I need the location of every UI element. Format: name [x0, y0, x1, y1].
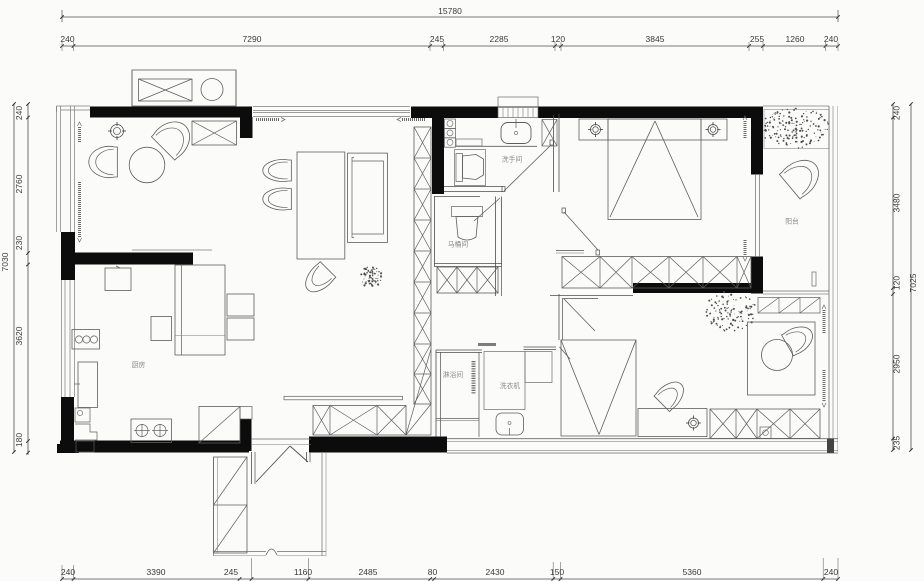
- svg-text:阳台: 阳台: [785, 217, 799, 226]
- svg-text:150: 150: [550, 567, 564, 577]
- svg-text:240: 240: [60, 34, 74, 44]
- svg-text:1260: 1260: [786, 34, 805, 44]
- svg-text:1160: 1160: [294, 567, 313, 577]
- svg-text:240: 240: [14, 106, 24, 120]
- svg-text:2760: 2760: [14, 174, 24, 193]
- svg-text:3390: 3390: [147, 567, 166, 577]
- svg-text:洗衣机: 洗衣机: [500, 381, 521, 390]
- svg-text:120: 120: [551, 34, 565, 44]
- svg-text:洗手间: 洗手间: [502, 155, 523, 164]
- svg-text:240: 240: [824, 34, 838, 44]
- svg-text:7290: 7290: [243, 34, 262, 44]
- svg-text:80: 80: [428, 567, 438, 577]
- svg-text:245: 245: [224, 567, 238, 577]
- svg-text:淋浴间: 淋浴间: [443, 370, 464, 379]
- svg-text:3845: 3845: [646, 34, 665, 44]
- svg-text:5360: 5360: [683, 567, 702, 577]
- svg-text:3620: 3620: [14, 326, 24, 345]
- svg-text:2950: 2950: [892, 354, 902, 373]
- svg-text:2485: 2485: [359, 567, 378, 577]
- svg-text:7030: 7030: [0, 252, 10, 271]
- svg-text:2430: 2430: [486, 567, 505, 577]
- svg-text:240: 240: [824, 567, 838, 577]
- svg-text:255: 255: [750, 34, 764, 44]
- svg-text:240: 240: [892, 106, 902, 120]
- svg-text:235: 235: [892, 436, 902, 450]
- svg-text:120: 120: [892, 276, 902, 290]
- svg-text:240: 240: [61, 567, 75, 577]
- svg-text:马桶间: 马桶间: [448, 240, 469, 249]
- svg-text:15780: 15780: [438, 6, 462, 16]
- svg-text:230: 230: [14, 236, 24, 250]
- svg-text:厨房: 厨房: [132, 360, 146, 369]
- svg-text:3480: 3480: [892, 193, 902, 212]
- svg-text:7025: 7025: [908, 273, 918, 292]
- svg-text:245: 245: [430, 34, 444, 44]
- svg-text:2285: 2285: [490, 34, 509, 44]
- svg-text:180: 180: [14, 433, 24, 447]
